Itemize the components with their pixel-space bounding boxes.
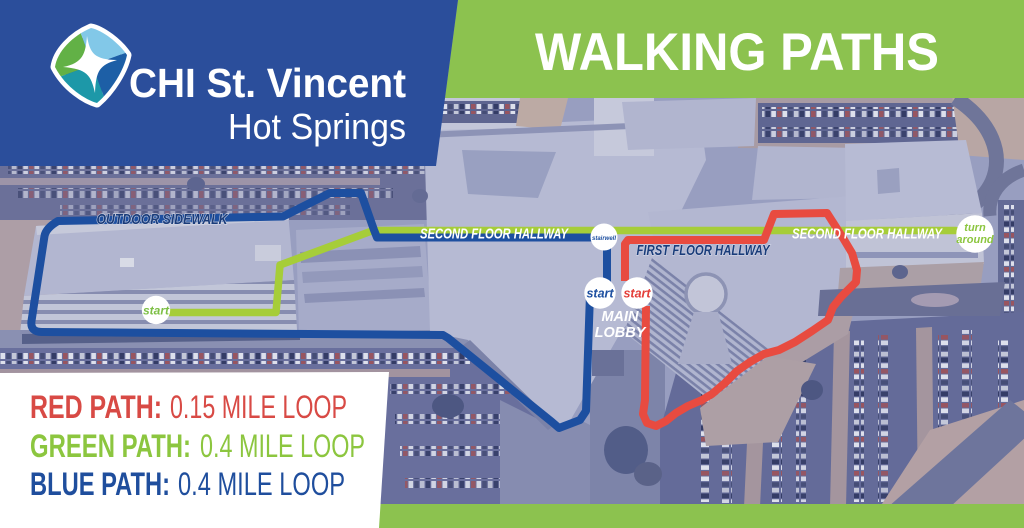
svg-text:0.15 MILE LOOP: 0.15 MILE LOOP — [170, 389, 347, 425]
svg-text:WALKING PATHS: WALKING PATHS — [535, 23, 939, 82]
svg-text:turn: turn — [964, 222, 986, 234]
svg-text:MAIN: MAIN — [601, 309, 639, 325]
svg-text:OUTDOOR SIDEWALK: OUTDOOR SIDEWALK — [97, 212, 229, 228]
svg-text:Hot Springs: Hot Springs — [228, 106, 406, 147]
svg-text:0.4 MILE LOOP: 0.4 MILE LOOP — [178, 466, 345, 502]
svg-text:SECOND FLOOR HALLWAY: SECOND FLOOR HALLWAY — [792, 227, 943, 243]
svg-text:GREEN PATH:: GREEN PATH: — [30, 428, 191, 464]
svg-text:start: start — [586, 287, 614, 301]
svg-text:0.4 MILE LOOP: 0.4 MILE LOOP — [200, 428, 365, 464]
svg-text:around: around — [956, 234, 994, 246]
svg-text:RED PATH:: RED PATH: — [30, 389, 162, 425]
svg-text:FIRST FLOOR HALLWAY: FIRST FLOOR HALLWAY — [637, 243, 771, 259]
svg-text:start: start — [143, 304, 170, 318]
svg-text:start: start — [623, 287, 651, 301]
svg-text:SECOND FLOOR HALLWAY: SECOND FLOOR HALLWAY — [420, 227, 569, 243]
svg-text:BLUE PATH:: BLUE PATH: — [30, 466, 170, 502]
svg-text:LOBBY: LOBBY — [595, 325, 647, 341]
svg-text:stairwell: stairwell — [592, 236, 616, 242]
svg-text:CHI St. Vincent: CHI St. Vincent — [129, 60, 406, 106]
